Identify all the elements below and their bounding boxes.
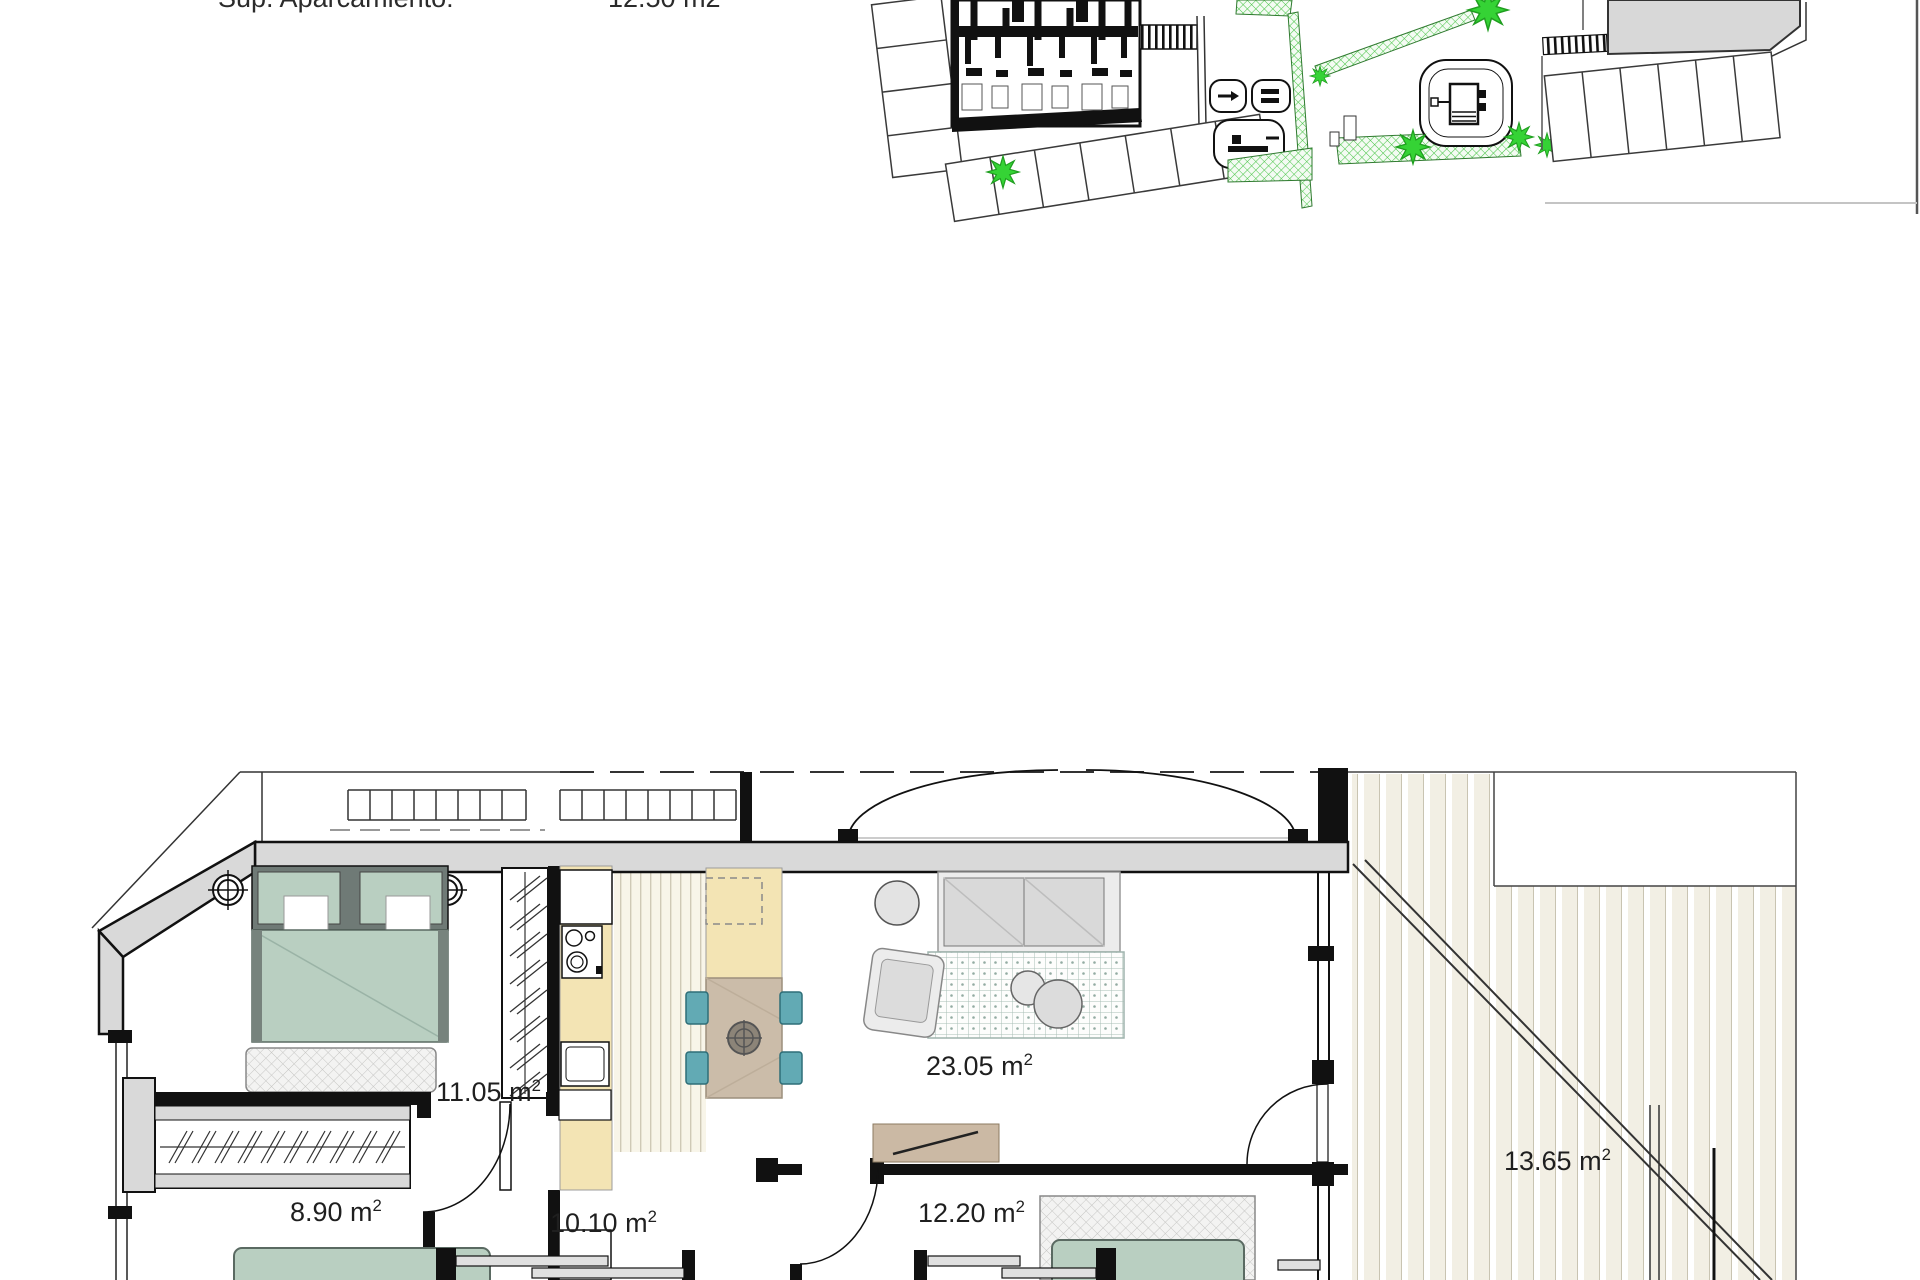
neighbor-building [1543,0,1806,57]
tv-bench [873,1124,999,1162]
room-area-label-bedroom-1: 11.05 m2 [436,1072,541,1106]
room-area-label-bedroom-4: 12.20 m2 [918,1193,1025,1227]
fridge [560,870,612,924]
hob [562,926,602,978]
room-area-label-terrace: 13.65 m2 [1504,1141,1611,1175]
area-sup: 2 [1024,1050,1033,1069]
area-value: 12.20 m [918,1198,1016,1228]
plan-drawing [0,0,1920,1280]
area-sup: 2 [1016,1197,1025,1216]
building-footprint [952,0,1142,132]
bedroom-1-wardrobe [502,868,548,1098]
site-plan [872,0,1917,221]
area-value: 11.05 m [436,1077,532,1107]
playground-area [1420,60,1512,146]
area-sup: 2 [532,1076,541,1095]
pouf [1034,980,1082,1028]
room-area-label-bedroom-3: 10.10 m2 [550,1203,657,1237]
armchair [863,947,946,1038]
area-sup: 2 [648,1207,657,1226]
area-value: 8.90 m [290,1197,373,1227]
room-area-label-living: 23.05 m2 [926,1046,1033,1080]
entry-double-door [838,770,1308,842]
terrace-door-arc [1247,1084,1327,1164]
sofa [938,872,1120,952]
door-bedroom-1 [423,1102,511,1212]
door-bedroom-4 [800,1168,878,1264]
porch-divider-wall [740,772,752,842]
area-sup: 2 [1602,1145,1611,1164]
parking-row-right [1544,52,1780,161]
bedroom-1-rug [246,1048,436,1092]
parking-column-left [872,0,963,178]
sink [561,1042,609,1086]
area-value: 10.10 m [550,1208,648,1238]
area-value: 23.05 m [926,1051,1024,1081]
side-table [875,881,919,925]
kitchen-island [706,868,782,978]
bedroom-1-bed [252,866,448,1042]
east-wall [1247,872,1334,1280]
appliance [559,1090,611,1120]
terrace-deck-right [1494,886,1796,1280]
room-area-label-bedroom-2: 8.90 m2 [290,1192,382,1226]
terrace-deck-left [1352,774,1494,1280]
stairs-hatch [1140,25,1197,49]
living-room [863,872,1124,1162]
architectural-plan-page: Sup. Aparcamiento: 12.50 m2 [0,0,1920,1280]
area-sup: 2 [373,1196,382,1215]
area-value: 13.65 m [1504,1146,1602,1176]
